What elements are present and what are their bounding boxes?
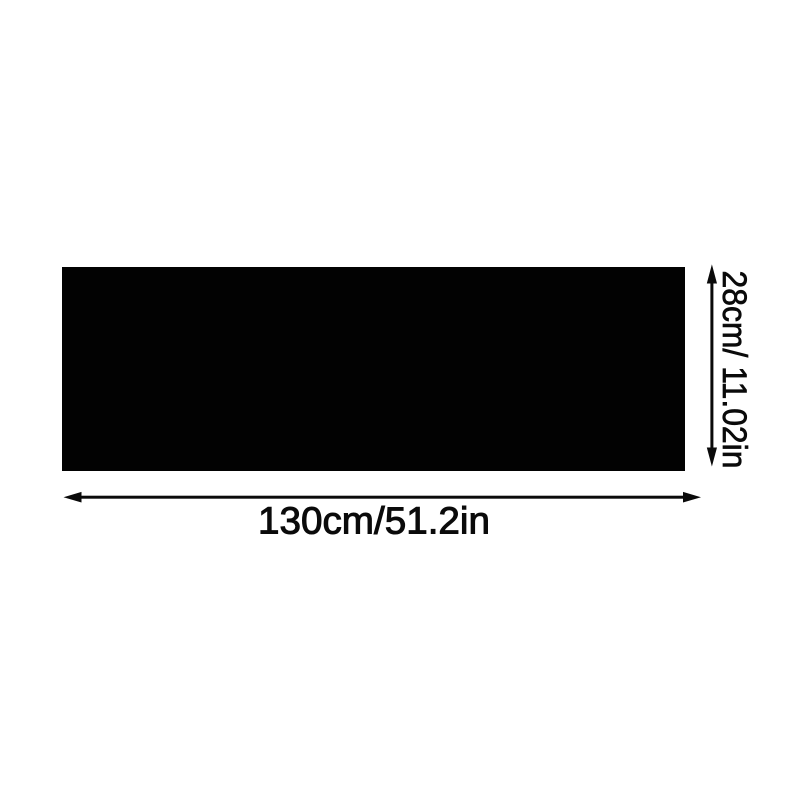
svg-text:28cm/ 11.02in: 28cm/ 11.02in bbox=[715, 271, 753, 469]
svg-text:130cm/51.2in: 130cm/51.2in bbox=[258, 501, 490, 543]
